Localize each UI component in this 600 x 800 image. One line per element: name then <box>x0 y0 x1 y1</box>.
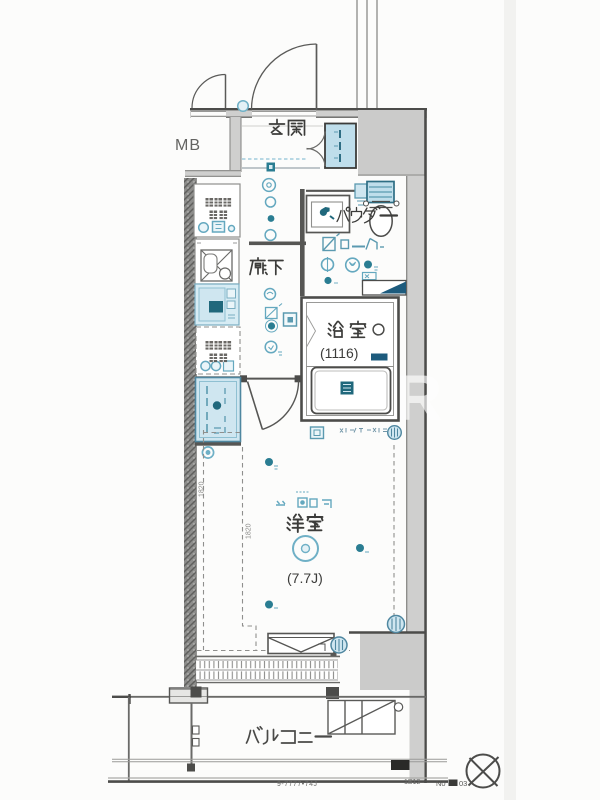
svg-text:1820: 1820 <box>246 523 253 539</box>
svg-text:(7.7J): (7.7J) <box>287 570 323 586</box>
svg-text:03: 03 <box>459 779 467 788</box>
svg-text:(1116): (1116) <box>320 345 358 361</box>
svg-text:MB: MB <box>175 137 201 154</box>
svg-text:N0: N0 <box>436 779 446 788</box>
svg-text:9-7777•74J: 9-7777•74J <box>277 781 318 788</box>
svg-text:1820: 1820 <box>199 481 206 497</box>
svg-text:1B12: 1B12 <box>404 779 420 786</box>
svg-text:R: R <box>396 362 442 434</box>
